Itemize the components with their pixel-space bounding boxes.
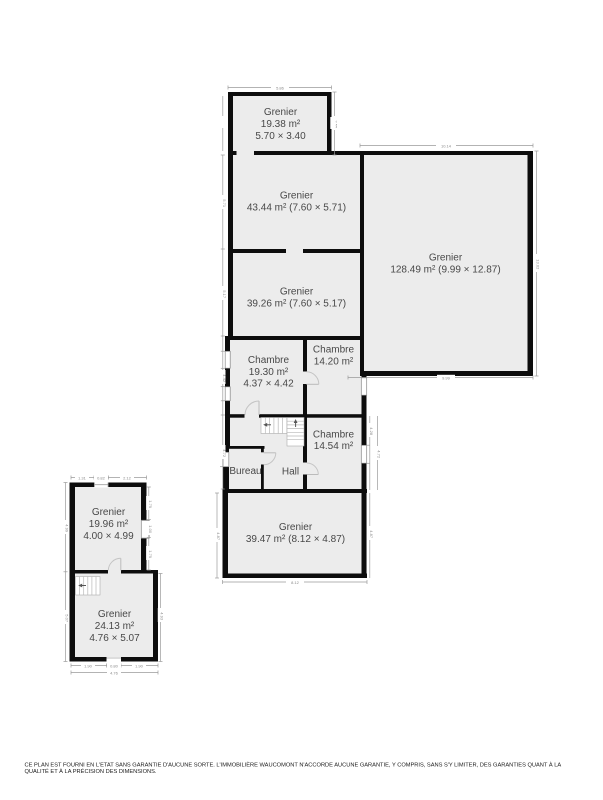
svg-text:39.26 m² (7.60 × 5.17): 39.26 m² (7.60 × 5.17) bbox=[247, 298, 346, 309]
svg-text:4.76 × 5.07: 4.76 × 5.07 bbox=[89, 633, 140, 644]
svg-text:5.70 × 3.40: 5.70 × 3.40 bbox=[255, 131, 306, 142]
svg-text:1.90: 1.90 bbox=[135, 663, 144, 668]
svg-text:Grenier: Grenier bbox=[264, 107, 298, 118]
svg-text:9.99: 9.99 bbox=[442, 375, 451, 380]
svg-text:19.38 m²: 19.38 m² bbox=[261, 119, 301, 130]
svg-text:4.42: 4.42 bbox=[222, 374, 227, 383]
svg-text:43.44 m² (7.60 × 5.71): 43.44 m² (7.60 × 5.71) bbox=[247, 202, 346, 213]
svg-text:0.82: 0.82 bbox=[97, 475, 106, 480]
svg-text:10.14: 10.14 bbox=[441, 143, 452, 148]
svg-text:Bureau: Bureau bbox=[229, 466, 261, 477]
svg-text:Chambre: Chambre bbox=[248, 355, 290, 366]
svg-text:Grenier: Grenier bbox=[92, 507, 126, 518]
svg-text:1.90: 1.90 bbox=[84, 663, 93, 668]
svg-text:39.47 m² (8.12 × 4.87): 39.47 m² (8.12 × 4.87) bbox=[246, 534, 345, 545]
svg-text:19.30 m²: 19.30 m² bbox=[249, 367, 289, 378]
svg-text:4.00 × 4.99: 4.00 × 4.99 bbox=[83, 531, 134, 542]
svg-text:Chambre: Chambre bbox=[313, 345, 355, 356]
svg-text:1.79: 1.79 bbox=[148, 550, 153, 559]
svg-text:4.72: 4.72 bbox=[377, 450, 382, 459]
svg-text:128.49 m² (9.99 × 12.87): 128.49 m² (9.99 × 12.87) bbox=[390, 264, 500, 275]
svg-text:5.86: 5.86 bbox=[276, 85, 285, 90]
svg-text:4.87: 4.87 bbox=[369, 530, 374, 539]
svg-text:0.80: 0.80 bbox=[110, 663, 119, 668]
svg-text:1.31: 1.31 bbox=[78, 475, 87, 480]
svg-text:Grenier: Grenier bbox=[280, 287, 314, 298]
svg-text:13.02: 13.02 bbox=[536, 259, 541, 270]
svg-text:4.72: 4.72 bbox=[222, 449, 227, 458]
svg-text:8.12: 8.12 bbox=[291, 580, 300, 585]
svg-text:CE PLAN EST FOURNI EN L'ETAT S: CE PLAN EST FOURNI EN L'ETAT SANS GARANT… bbox=[25, 762, 562, 769]
svg-text:4.93: 4.93 bbox=[160, 612, 165, 621]
svg-text:Grenier: Grenier bbox=[279, 522, 313, 533]
svg-text:14.54 m²: 14.54 m² bbox=[314, 441, 354, 452]
svg-text:19.96 m²: 19.96 m² bbox=[89, 519, 129, 530]
svg-text:14.20 m²: 14.20 m² bbox=[314, 356, 354, 367]
svg-text:4.87: 4.87 bbox=[216, 532, 221, 541]
svg-text:Hall: Hall bbox=[282, 467, 299, 478]
svg-text:1.00: 1.00 bbox=[148, 525, 153, 534]
svg-text:Grenier: Grenier bbox=[280, 191, 314, 202]
svg-text:1.79: 1.79 bbox=[148, 500, 153, 509]
svg-text:4.99: 4.99 bbox=[65, 524, 70, 533]
svg-text:Grenier: Grenier bbox=[98, 609, 132, 620]
svg-text:4.37 × 4.42: 4.37 × 4.42 bbox=[243, 379, 294, 390]
svg-text:5.07: 5.07 bbox=[65, 614, 70, 623]
svg-text:4.28: 4.28 bbox=[369, 427, 374, 436]
svg-text:5.17: 5.17 bbox=[222, 290, 227, 299]
svg-text:Chambre: Chambre bbox=[313, 429, 355, 440]
svg-text:2.12: 2.12 bbox=[123, 475, 132, 480]
svg-text:4.76: 4.76 bbox=[110, 670, 119, 675]
svg-text:QUALITÉ ET À LA PRÉCISION DES: QUALITÉ ET À LA PRÉCISION DES DIMENSIONS… bbox=[25, 768, 157, 775]
svg-text:24.13 m²: 24.13 m² bbox=[95, 621, 135, 632]
svg-text:5.71: 5.71 bbox=[222, 199, 227, 208]
svg-text:Grenier: Grenier bbox=[429, 253, 463, 264]
